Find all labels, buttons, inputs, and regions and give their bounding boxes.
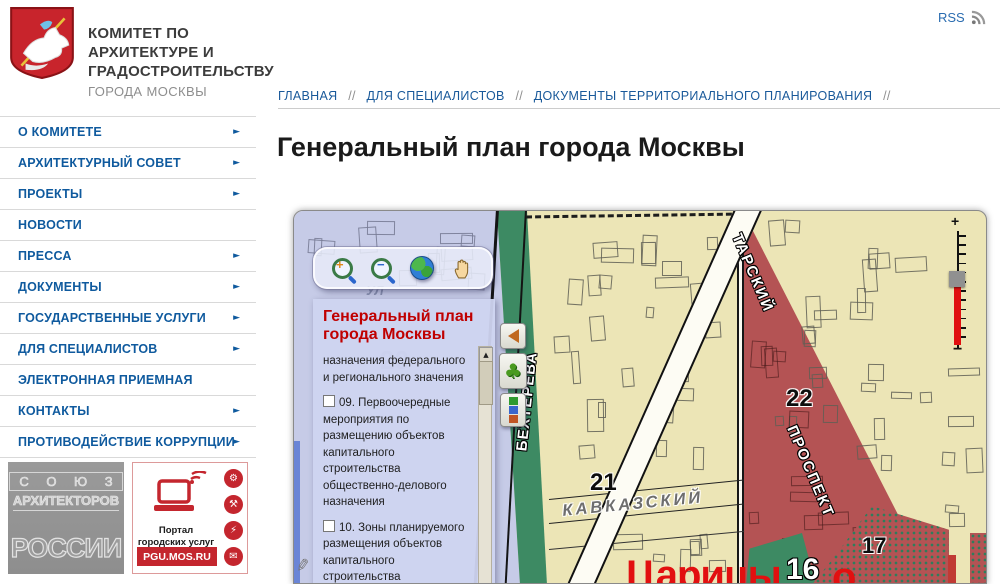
moscow-coat-of-arms-logo <box>8 6 76 80</box>
building-outline <box>693 447 704 470</box>
plumbing-icon: ⚒ <box>224 495 243 514</box>
building-outline <box>868 364 885 381</box>
breadcrumb: ГЛАВНАЯ // ДЛЯ СПЕЦИАЛИСТОВ // ДОКУМЕНТЫ… <box>278 89 898 103</box>
building-outline <box>804 330 816 348</box>
building-outline <box>806 296 823 328</box>
car-icon: ⚙ <box>224 469 243 488</box>
building-outline <box>642 235 658 267</box>
submenu-arrow-icon <box>233 148 240 178</box>
building-outline <box>567 278 584 305</box>
breadcrumb-divider <box>278 108 1000 109</box>
sidebar-item-elektronnaya-priemnaya[interactable]: ЭЛЕКТРОННАЯ ПРИЕМНАЯ <box>0 365 256 396</box>
place-name-label: о <box>832 555 856 584</box>
portal-caption: Портал городских услуг <box>137 525 215 549</box>
slider-tick <box>958 235 966 237</box>
laptop-icon <box>145 471 209 523</box>
building-outline <box>861 382 876 392</box>
building-outline <box>894 256 927 273</box>
zoom-in-button[interactable]: + <box>332 258 353 279</box>
building-outline <box>919 392 932 404</box>
pan-hand-button[interactable] <box>452 257 474 279</box>
legend-scrollbar[interactable] <box>478 346 492 584</box>
sidebar-item-gosudarstvennye-uslugi[interactable]: ГОСУДАРСТВЕННЫЕ УСЛУГИ <box>0 303 256 334</box>
tree-icon: ♣ <box>504 359 522 383</box>
building-outline <box>774 415 783 426</box>
building-outline <box>822 405 838 424</box>
building-outline <box>587 274 601 296</box>
lightbulb-icon: ⚡ <box>224 521 243 540</box>
building-outline <box>768 220 786 247</box>
breadcrumb-dokumenty-planirovaniya[interactable]: ДОКУМЕНТЫ ТЕРРИТОРИАЛЬНОГО ПЛАНИРОВАНИЯ <box>534 89 873 103</box>
sidebar-menu: О КОМИТЕТЕ АРХИТЕКТУРНЫЙ СОВЕТ ПРОЕКТЫ Н… <box>0 116 256 458</box>
collapse-panel-button[interactable] <box>500 323 526 349</box>
portal-url[interactable]: PGU.MOS.RU <box>137 547 217 566</box>
map-zone-red-small <box>948 555 956 584</box>
building-outline <box>578 444 595 459</box>
district-16-label: 16 <box>786 553 819 584</box>
building-outline <box>587 399 604 433</box>
building-outline <box>856 445 877 461</box>
pgu-portal-banner[interactable]: Портал городских услуг PGU.MOS.RU ⚙ ⚒ ⚡ … <box>132 462 248 574</box>
submenu-arrow-icon <box>233 303 240 333</box>
org-subtitle: ГОРОДА МОСКВЫ <box>88 84 207 99</box>
rss-link[interactable]: RSS <box>938 10 986 25</box>
district-22-label: 22 <box>786 385 813 413</box>
legend-checkbox[interactable] <box>323 520 335 532</box>
page-title: Генеральный план города Москвы <box>277 132 745 163</box>
sidebar-item-proekty[interactable]: ПРОЕКТЫ <box>0 179 256 210</box>
map-zone-red-hatched-edge <box>970 533 987 584</box>
building-outline <box>809 366 827 378</box>
sidebar-item-protivodeystvie-korruptsii[interactable]: ПРОТИВОДЕЙСТВИЕ КОРРУПЦИИ <box>0 427 256 458</box>
building-outline <box>772 351 786 362</box>
building-outline <box>571 351 581 384</box>
building-outline <box>942 451 956 466</box>
building-outline <box>645 307 654 318</box>
building-outline <box>891 392 913 400</box>
sidebar-item-kontakty[interactable]: КОНТАКТЫ <box>0 396 256 427</box>
slider-handle[interactable] <box>949 271 965 287</box>
legend-item[interactable]: 10. Зоны планируемого размещения объекто… <box>323 520 469 584</box>
org-name: КОМИТЕТ ПО АРХИТЕКТУРЕ И ГРАДОСТРОИТЕЛЬС… <box>88 24 278 81</box>
building-outline <box>592 241 618 259</box>
place-name-label: Царицы <box>626 553 781 584</box>
slider-tick <box>958 263 966 265</box>
documents-icon: ✉ <box>224 547 243 566</box>
union-line3: РОССИИ <box>11 533 121 564</box>
legend-toggle-button[interactable] <box>500 393 526 427</box>
sidebar-item-arkhitekturny-sovet[interactable]: АРХИТЕКТУРНЫЙ СОВЕТ <box>0 148 256 179</box>
building-outline <box>655 276 689 288</box>
portal-service-icons: ⚙ ⚒ ⚡ ✉ <box>224 469 243 566</box>
legend-item[interactable]: 09. Первоочередные мероприятия по размещ… <box>323 395 469 511</box>
building-outline <box>948 367 981 376</box>
district-17-label: 17 <box>862 533 886 559</box>
slider-tick <box>958 244 966 246</box>
rss-icon <box>971 10 986 25</box>
building-outline <box>862 258 878 292</box>
submenu-arrow-icon <box>233 334 240 364</box>
union-line2: АРХИТЕКТОРОВ <box>13 493 119 511</box>
building-outline <box>749 511 759 524</box>
union-line1: С О Ю З <box>9 472 122 491</box>
building-outline <box>948 513 965 528</box>
slider-zoom-in[interactable]: + <box>951 213 959 229</box>
building-outline <box>966 448 984 474</box>
page: КОМИТЕТ ПО АРХИТЕКТУРЕ И ГРАДОСТРОИТЕЛЬС… <box>0 0 1006 584</box>
sidebar-item-dlya-spetsialistov[interactable]: ДЛЯ СПЕЦИАЛИСТОВ <box>0 334 256 365</box>
building-outline <box>785 220 800 234</box>
legend-title: Генеральный план города Москвы <box>323 308 485 344</box>
legend-item[interactable]: назначения федерального и регионального … <box>323 353 469 386</box>
map-viewer[interactable]: ✎ 20 УЛ БЕХТЕРЕВА ТАРСКИЙ ПРОСПЕКТ КАВКА… <box>293 210 987 584</box>
green-layers-button[interactable]: ♣ <box>499 353 527 389</box>
sidebar-item-dokumenty[interactable]: ДОКУМЕНТЫ <box>0 272 256 303</box>
map-toolbar: + − <box>313 247 493 289</box>
building-outline <box>461 234 476 247</box>
breadcrumb-glavnaya[interactable]: ГЛАВНАЯ <box>278 89 337 103</box>
building-outline <box>750 341 767 369</box>
submenu-arrow-icon <box>233 396 240 426</box>
slider-tick <box>958 253 966 255</box>
scroll-up-icon[interactable] <box>479 347 493 362</box>
submenu-arrow-icon <box>233 241 240 271</box>
submenu-arrow-icon <box>233 179 240 209</box>
district-21-label: 21 <box>590 469 617 497</box>
sidebar-item-o-komitete[interactable]: О КОМИТЕТЕ <box>0 116 256 148</box>
rss-label: RSS <box>938 10 965 25</box>
legend-panel: Генеральный план города Москвы назначени… <box>313 299 495 584</box>
legend-checkbox[interactable] <box>323 395 335 407</box>
slider-red-bar <box>954 287 961 345</box>
union-of-architects-banner[interactable]: С О Ю З АРХИТЕКТОРОВ РОССИИ <box>8 462 124 574</box>
building-outline <box>662 261 682 276</box>
sidebar-item-novosti[interactable]: НОВОСТИ <box>0 210 256 241</box>
building-outline <box>621 367 634 387</box>
sidebar-item-pressa[interactable]: ПРЕССА <box>0 241 256 272</box>
breadcrumb-dlya-spetsialistov[interactable]: ДЛЯ СПЕЦИАЛИСТОВ <box>367 89 505 103</box>
building-outline <box>948 416 974 427</box>
submenu-arrow-icon <box>233 272 240 302</box>
building-outline <box>881 455 893 471</box>
building-outline <box>554 335 571 353</box>
triangle-left-icon <box>508 329 519 343</box>
globe-full-extent-button[interactable] <box>410 256 434 280</box>
submenu-arrow-icon <box>233 427 240 457</box>
building-outline <box>944 504 959 513</box>
building-outline <box>588 315 605 341</box>
building-outline <box>874 418 885 441</box>
slider-zoom-out[interactable]: − <box>953 341 962 359</box>
submenu-arrow-icon <box>233 117 240 147</box>
zoom-out-button[interactable]: − <box>371 258 392 279</box>
scrollbar-thumb[interactable] <box>479 361 493 405</box>
legend-squares-icon <box>509 396 518 424</box>
